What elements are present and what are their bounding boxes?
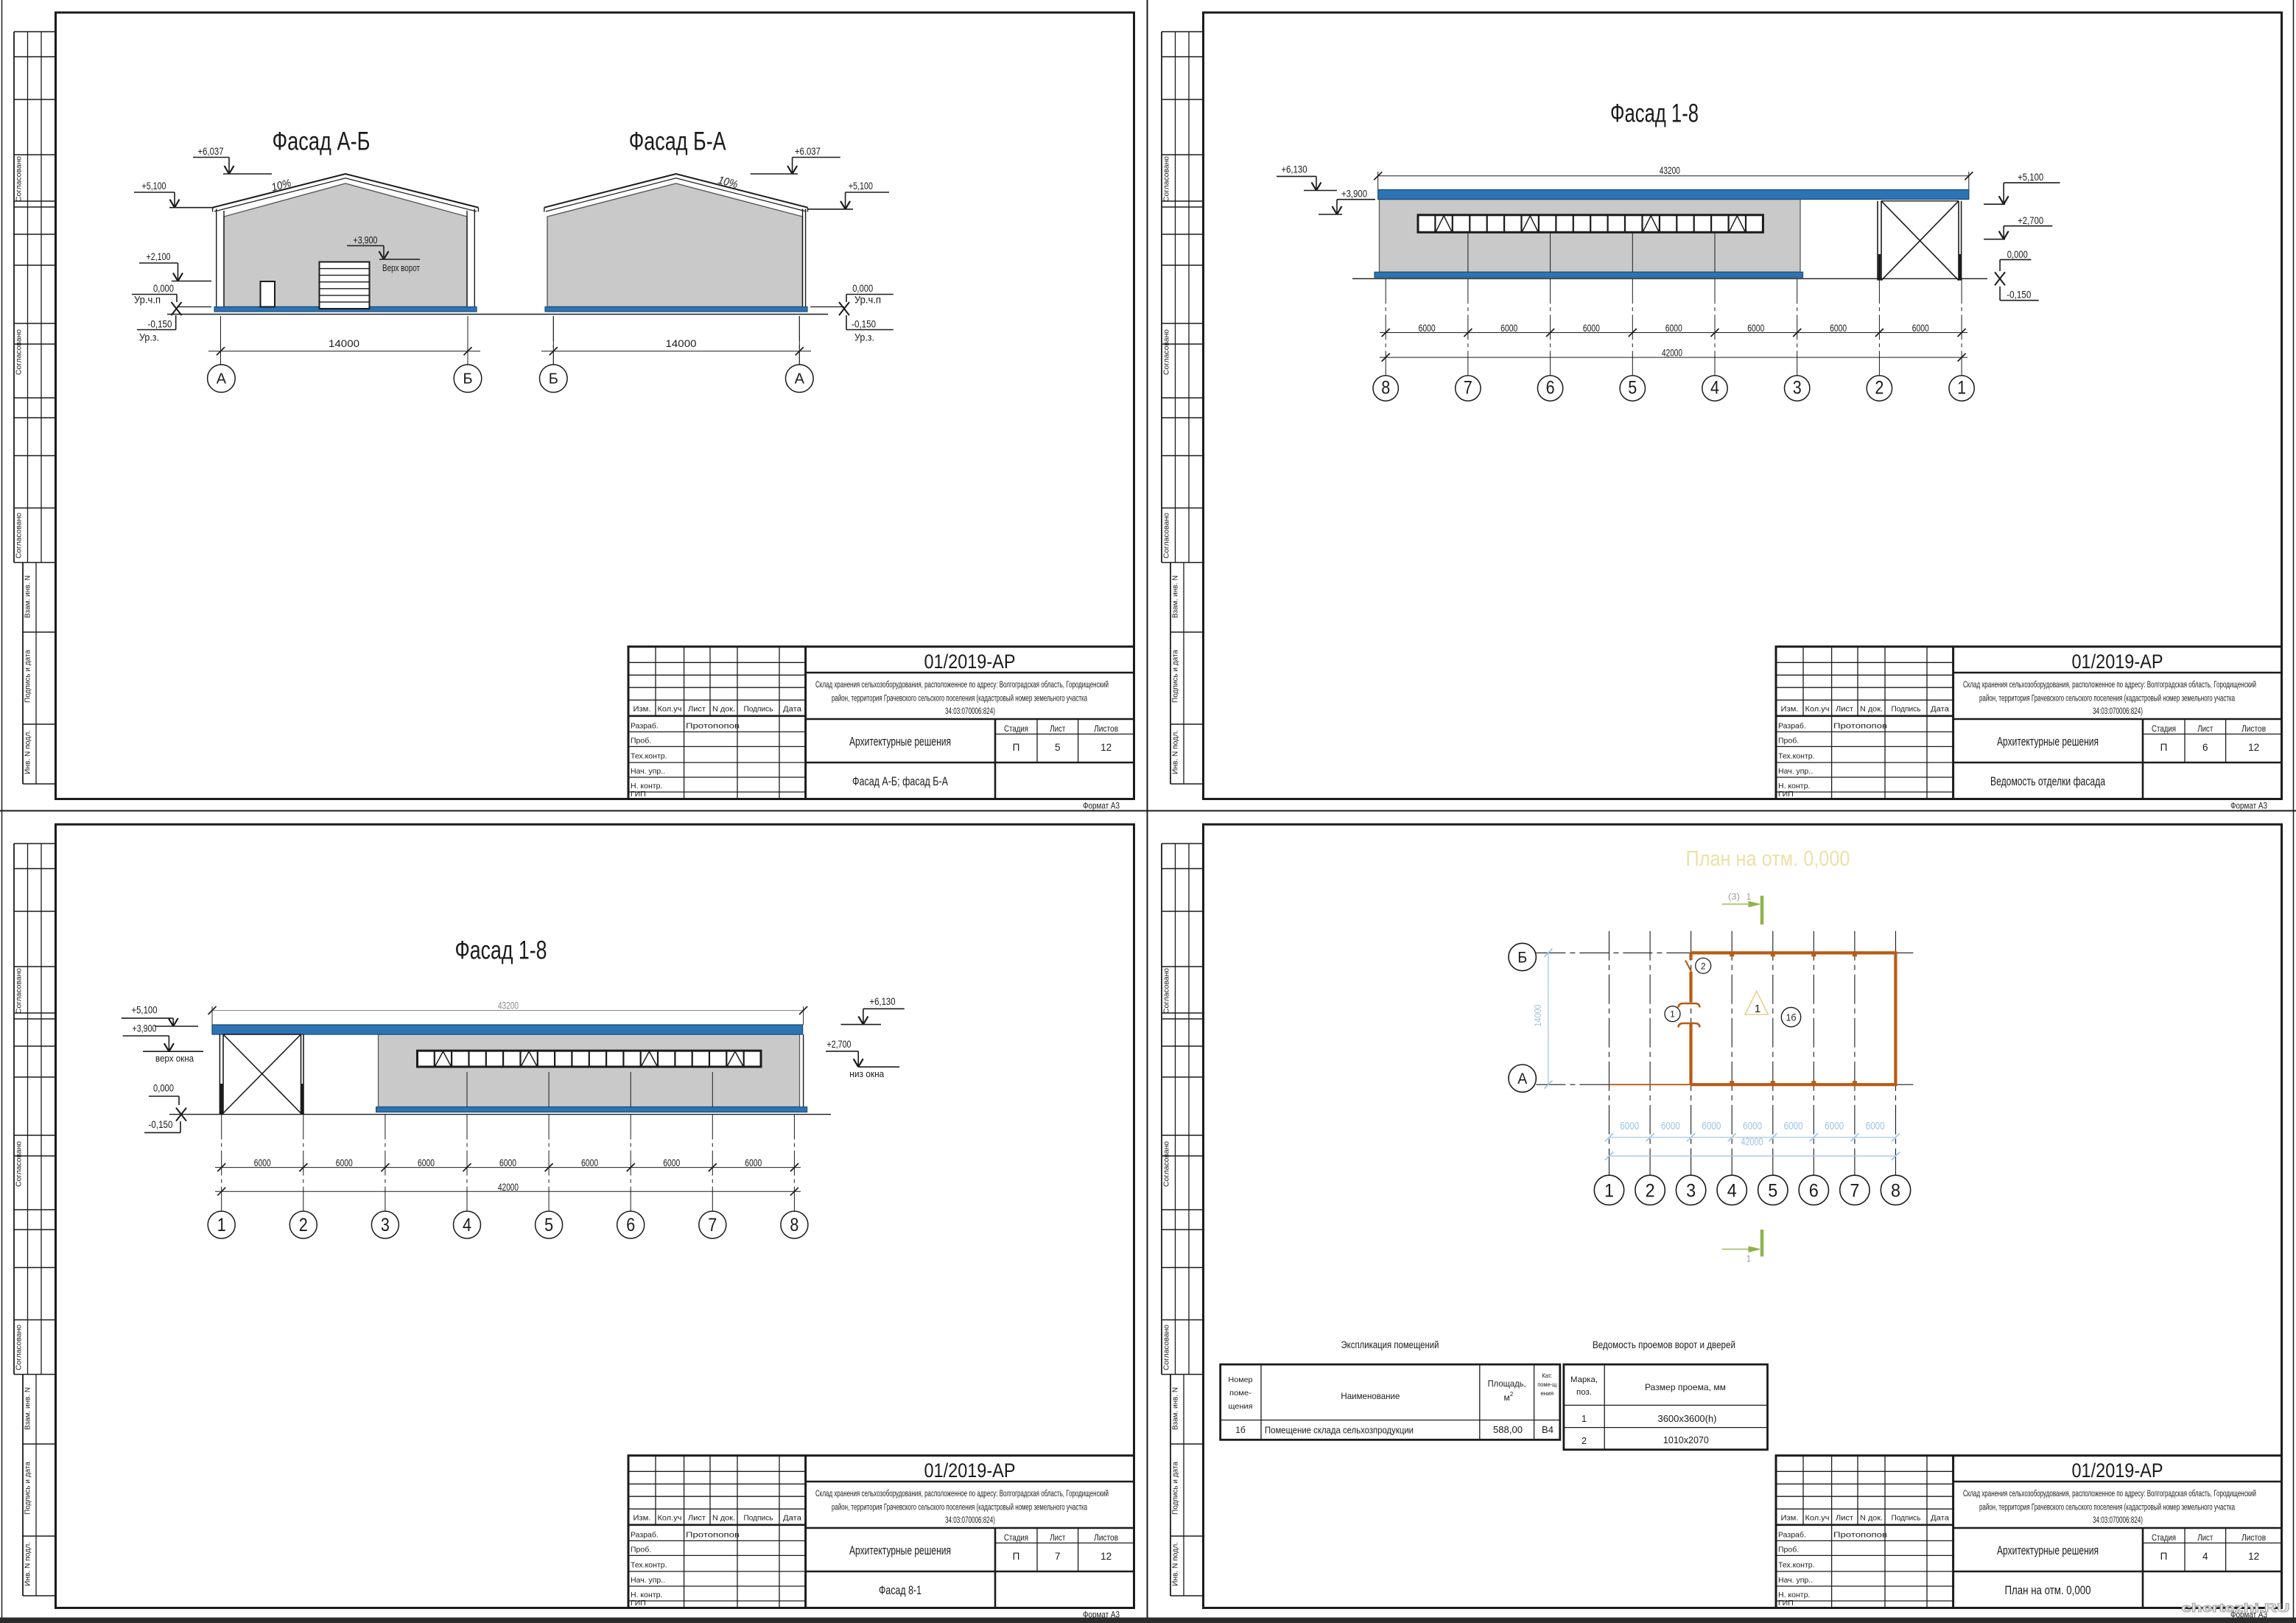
svg-text:Согласовано: Согласовано (1162, 513, 1171, 558)
svg-text:Подпись и дата: Подпись и дата (24, 650, 32, 703)
svg-text:2: 2 (1875, 378, 1884, 399)
svg-text:ГИП: ГИП (631, 790, 646, 799)
svg-text:Экспликация помещений: Экспликация помещений (1341, 1339, 1439, 1350)
svg-text:8: 8 (790, 1215, 798, 1235)
svg-text:Фасад Б-А: Фасад Б-А (629, 127, 727, 156)
svg-text:Тех.контр.: Тех.контр. (1778, 752, 1815, 761)
svg-text:6000: 6000 (1784, 1121, 1803, 1132)
svg-text:Б: Б (1517, 950, 1527, 967)
svg-text:Дата: Дата (783, 706, 801, 714)
svg-text:01/2019-АР: 01/2019-АР (924, 651, 1016, 673)
svg-text:-0,150: -0,150 (148, 319, 172, 331)
svg-text:Ур.ч.п: Ур.ч.п (854, 295, 881, 306)
svg-text:Нач. упр..: Нач. упр.. (631, 1576, 665, 1585)
svg-text:Проб.: Проб. (631, 737, 651, 746)
svg-text:3: 3 (1793, 378, 1802, 399)
svg-text:6000: 6000 (663, 1157, 680, 1169)
svg-text:План на отм. 0,000: План на отм. 0,000 (1686, 847, 1850, 871)
svg-text:Проб.: Проб. (1778, 1546, 1799, 1554)
svg-text:Лист: Лист (1050, 1534, 1066, 1543)
svg-text:Согласовано: Согласовано (1162, 968, 1171, 1014)
svg-text:4: 4 (463, 1215, 471, 1235)
svg-text:Нач. упр..: Нач. упр.. (631, 767, 665, 776)
svg-text:1010х2070: 1010х2070 (1663, 1435, 1709, 1445)
svg-text:Б: Б (463, 371, 472, 388)
svg-text:А: А (1517, 1070, 1527, 1087)
svg-text:42000: 42000 (1741, 1136, 1763, 1148)
svg-text:3600х3600(h): 3600х3600(h) (1658, 1414, 1717, 1424)
svg-text:Фасад 1-8: Фасад 1-8 (455, 936, 547, 965)
svg-text:N док.: N док. (1860, 706, 1883, 714)
svg-text:район, территория Грачевского: район, территория Грачевского сельского … (1979, 693, 2235, 704)
svg-text:4: 4 (1727, 1180, 1737, 1201)
svg-text:5: 5 (1768, 1180, 1777, 1201)
svg-text:Подпись: Подпись (1892, 706, 1921, 714)
svg-text:chertezhi.RU: chertezhi.RU (2182, 1601, 2290, 1615)
svg-text:Формат А3: Формат А3 (2230, 801, 2267, 811)
svg-text:Листов: Листов (2241, 725, 2266, 734)
svg-text:Наименование: Наименование (1341, 1391, 1400, 1401)
svg-text:4: 4 (1710, 378, 1719, 399)
svg-text:6000: 6000 (1620, 1121, 1639, 1132)
svg-text:1б: 1б (1235, 1425, 1246, 1435)
svg-text:Лист: Лист (2197, 725, 2214, 734)
svg-text:Склад хранения сельхозоборудов: Склад хранения сельхозоборудования, расп… (1963, 1488, 2256, 1498)
svg-text:Взам. инв. N: Взам. инв. N (24, 575, 32, 618)
svg-text:6000: 6000 (1825, 1121, 1844, 1132)
svg-text:14000: 14000 (666, 337, 697, 349)
svg-text:Протопопов: Протопопов (686, 1531, 740, 1540)
svg-text:7: 7 (1464, 378, 1472, 399)
svg-text:Ведомость проемов ворот и двер: Ведомость проемов ворот и дверей (1593, 1339, 1735, 1350)
svg-text:1: 1 (1670, 1009, 1675, 1020)
svg-text:П: П (1013, 1551, 1020, 1562)
svg-text:+6,037: +6,037 (198, 146, 224, 158)
svg-text:Подпись и дата: Подпись и дата (24, 1462, 32, 1515)
svg-text:6: 6 (626, 1215, 635, 1235)
svg-text:Согласовано: Согласовано (1162, 1141, 1171, 1187)
svg-text:Формат А3: Формат А3 (1083, 1610, 1120, 1620)
svg-text:Лист: Лист (1050, 725, 1066, 734)
svg-text:14000: 14000 (1532, 1005, 1543, 1027)
svg-text:6: 6 (2202, 742, 2208, 753)
svg-text:район, территория Грачевского: район, территория Грачевского сельского … (1979, 1502, 2235, 1512)
svg-text:6000: 6000 (1866, 1121, 1885, 1132)
svg-text:+6.037: +6.037 (795, 146, 821, 158)
svg-text:ения: ения (1540, 1390, 1554, 1397)
svg-text:Лист: Лист (688, 706, 706, 714)
svg-text:Стадия: Стадия (2152, 725, 2176, 734)
svg-text:Подпись и дата: Подпись и дата (1172, 1462, 1180, 1515)
svg-text:588,00: 588,00 (1493, 1425, 1523, 1435)
svg-text:34:03:070006:824): 34:03:070006:824) (2093, 706, 2143, 716)
svg-text:12: 12 (2248, 742, 2259, 753)
svg-text:Формат А3: Формат А3 (1083, 801, 1120, 811)
svg-text:5: 5 (1628, 378, 1637, 399)
svg-text:Номер: Номер (1229, 1375, 1253, 1384)
svg-text:низ окна: низ окна (849, 1068, 885, 1079)
svg-text:Стадия: Стадия (2152, 1534, 2176, 1543)
svg-text:Инв. N подл.: Инв. N подл. (24, 1542, 32, 1586)
svg-text:12: 12 (1100, 1551, 1112, 1562)
svg-text:8: 8 (1381, 378, 1390, 399)
svg-text:0,000: 0,000 (852, 283, 873, 295)
svg-text:6000: 6000 (581, 1157, 598, 1169)
svg-text:Подпись: Подпись (1892, 1515, 1921, 1523)
svg-text:12: 12 (1100, 742, 1112, 753)
svg-text:6000: 6000 (1583, 323, 1600, 334)
svg-text:Кат.: Кат. (1542, 1373, 1552, 1379)
svg-text:Листов: Листов (2241, 1534, 2266, 1543)
svg-text:Подпись: Подпись (744, 706, 773, 714)
svg-text:42000: 42000 (498, 1182, 519, 1193)
svg-text:6000: 6000 (1661, 1121, 1680, 1132)
svg-text:6000: 6000 (1702, 1121, 1721, 1132)
svg-text:6: 6 (1809, 1180, 1819, 1201)
svg-text:Кол.уч: Кол.уч (1805, 1515, 1830, 1523)
svg-text:1: 1 (1746, 1255, 1751, 1264)
svg-text:Взам. инв. N: Взам. инв. N (24, 1387, 32, 1430)
svg-text:Тех.контр.: Тех.контр. (1778, 1561, 1815, 1570)
svg-text:-0,150: -0,150 (2007, 290, 2031, 301)
svg-text:6000: 6000 (1419, 323, 1436, 334)
svg-text:Площадь,: Площадь, (1488, 1378, 1526, 1389)
svg-text:Фасад А-Б; фасад Б-А: Фасад А-Б; фасад Б-А (852, 775, 948, 788)
svg-text:Б: Б (549, 371, 558, 388)
svg-text:1: 1 (1604, 1180, 1614, 1201)
svg-text:Помещение склада сельхозпродук: Помещение склада сельхозпродукции (1265, 1426, 1414, 1436)
svg-text:Дата: Дата (1931, 706, 1949, 714)
svg-text:Фасад 1-8: Фасад 1-8 (1610, 99, 1699, 128)
svg-text:Согласовано: Согласовано (1162, 1325, 1171, 1370)
svg-text:Согласовано: Согласовано (1162, 329, 1171, 375)
svg-text:В4: В4 (1542, 1425, 1554, 1435)
svg-text:+2,700: +2,700 (827, 1039, 852, 1051)
svg-text:Лист: Лист (2197, 1534, 2214, 1543)
svg-text:Архитектурные решения: Архитектурные решения (1997, 735, 2099, 749)
svg-text:ГИП: ГИП (1778, 790, 1794, 799)
svg-text:Инв. N подл.: Инв. N подл. (24, 730, 32, 774)
svg-text:Верх ворот: Верх ворот (382, 262, 420, 273)
svg-text:поме-щ: поме-щ (1537, 1381, 1556, 1388)
svg-text:0,000: 0,000 (153, 1083, 174, 1095)
svg-text:+3,900: +3,900 (354, 235, 378, 247)
svg-text:Проб.: Проб. (631, 1546, 651, 1554)
svg-text:34:03:070006:824): 34:03:070006:824) (2093, 1515, 2143, 1525)
svg-text:N док.: N док. (712, 706, 735, 714)
svg-text:Разраб.: Разраб. (631, 1531, 659, 1540)
svg-text:01/2019-АР: 01/2019-АР (2072, 1459, 2163, 1482)
svg-text:Протопопов: Протопопов (1833, 1531, 1888, 1540)
svg-text:Лист: Лист (688, 1515, 706, 1523)
svg-text:Тех.контр.: Тех.контр. (631, 1561, 667, 1570)
svg-text:Ур.з.: Ур.з. (139, 332, 159, 343)
svg-text:Фасад 8-1: Фасад 8-1 (879, 1584, 921, 1597)
svg-text:34:03:070006:824): 34:03:070006:824) (945, 1515, 995, 1525)
svg-text:Кол.уч: Кол.уч (658, 1515, 682, 1523)
svg-text:2: 2 (299, 1215, 308, 1235)
svg-text:01/2019-АР: 01/2019-АР (924, 1459, 1016, 1482)
svg-text:2: 2 (1581, 1436, 1587, 1446)
svg-text:6: 6 (1546, 378, 1555, 399)
svg-text:0,000: 0,000 (153, 283, 174, 295)
svg-text:N док.: N док. (712, 1515, 735, 1523)
svg-text:3: 3 (1686, 1180, 1696, 1201)
svg-text:П: П (1013, 742, 1020, 753)
svg-text:Подпись: Подпись (744, 1515, 773, 1523)
svg-text:+6,130: +6,130 (1282, 164, 1307, 176)
svg-text:6000: 6000 (1747, 323, 1764, 334)
svg-text:6000: 6000 (1500, 323, 1517, 334)
svg-text:6000: 6000 (418, 1157, 435, 1169)
svg-text:Лист: Лист (1836, 1515, 1853, 1523)
svg-text:+3,900: +3,900 (133, 1023, 157, 1035)
svg-text:Тех.контр.: Тех.контр. (631, 752, 667, 761)
svg-text:ГИП: ГИП (631, 1599, 646, 1608)
svg-text:1: 1 (1581, 1414, 1587, 1424)
svg-text:43200: 43200 (1660, 165, 1680, 177)
svg-text:Изм.: Изм. (1781, 1515, 1799, 1523)
svg-text:6000: 6000 (336, 1157, 353, 1169)
svg-text:Архитектурные решения: Архитектурные решения (849, 735, 951, 749)
svg-text:Стадия: Стадия (1004, 725, 1028, 734)
svg-text:8: 8 (1891, 1180, 1900, 1201)
svg-text:6000: 6000 (1830, 323, 1847, 334)
svg-text:Согласовано: Согласовано (15, 156, 24, 202)
svg-text:Разраб.: Разраб. (1778, 1531, 1806, 1540)
svg-text:План на отм. 0,000: План на отм. 0,000 (2005, 1584, 2091, 1597)
svg-text:+3,900: +3,900 (1341, 189, 1367, 200)
svg-text:Разраб.: Разраб. (1778, 722, 1806, 731)
svg-text:Подпись и дата: Подпись и дата (1172, 650, 1180, 703)
svg-text:Стадия: Стадия (1004, 1534, 1028, 1543)
svg-text:+5,100: +5,100 (142, 180, 166, 192)
svg-text:5: 5 (544, 1215, 553, 1235)
svg-text:3: 3 (381, 1215, 390, 1235)
svg-text:Марка,: Марка, (1570, 1375, 1598, 1384)
svg-text:Согласовано: Согласовано (15, 1141, 24, 1187)
svg-text:ГИП: ГИП (1778, 1599, 1794, 1608)
svg-text:Архитектурные решения: Архитектурные решения (1997, 1544, 2099, 1557)
svg-text:Склад хранения сельхозоборудов: Склад хранения сельхозоборудования, расп… (1963, 679, 2256, 690)
svg-text:Дата: Дата (783, 1515, 801, 1523)
svg-text:1: 1 (1755, 1003, 1760, 1015)
svg-text:П: П (2160, 742, 2168, 753)
svg-text:+5,100: +5,100 (2018, 172, 2043, 183)
svg-text:Взам. инв. N: Взам. инв. N (1172, 1387, 1180, 1430)
svg-text:6000: 6000 (745, 1157, 762, 1169)
svg-text:Кол.уч: Кол.уч (658, 706, 682, 714)
svg-text:2: 2 (1510, 1391, 1514, 1398)
svg-text:43200: 43200 (498, 1000, 519, 1012)
svg-text:Проб.: Проб. (1778, 737, 1799, 746)
svg-text:Изм.: Изм. (633, 706, 651, 714)
svg-text:Согласовано: Согласовано (15, 329, 24, 375)
svg-text:район, территория Грачевского: район, территория Грачевского сельского … (832, 1502, 1087, 1512)
svg-text:5: 5 (1055, 742, 1061, 753)
svg-text:7: 7 (708, 1215, 717, 1235)
svg-text:Склад хранения сельхозоборудов: Склад хранения сельхозоборудования, расп… (815, 1488, 1109, 1498)
svg-text:2: 2 (1701, 961, 1706, 971)
svg-text:Согласовано: Согласовано (15, 1325, 24, 1370)
svg-text:П: П (2160, 1551, 2168, 1562)
svg-text:Ведомость отделки фасада: Ведомость отделки фасада (1990, 775, 2106, 788)
svg-text:+2,100: +2,100 (147, 251, 171, 263)
svg-text:1б: 1б (1786, 1013, 1796, 1023)
svg-text:-0,150: -0,150 (852, 319, 876, 331)
svg-text:1: 1 (217, 1215, 226, 1235)
svg-text:+5,100: +5,100 (132, 1005, 158, 1017)
svg-text:Взам. инв. N: Взам. инв. N (1172, 575, 1180, 618)
svg-text:Склад хранения сельхозоборудов: Склад хранения сельхозоборудования, расп… (815, 679, 1109, 690)
svg-text:1: 1 (1746, 893, 1751, 902)
svg-text:Лист: Лист (1836, 706, 1853, 714)
svg-text:А: А (217, 371, 227, 388)
svg-text:42000: 42000 (1662, 348, 1682, 360)
svg-text:-0,150: -0,150 (149, 1119, 173, 1131)
svg-text:Фасад А-Б: Фасад А-Б (273, 127, 371, 156)
svg-text:N док.: N док. (1860, 1515, 1883, 1523)
svg-text:поме-: поме- (1229, 1389, 1252, 1398)
svg-text:6000: 6000 (499, 1157, 516, 1169)
svg-text:Дата: Дата (1931, 1515, 1949, 1523)
svg-text:Инв. N подл.: Инв. N подл. (1172, 1542, 1180, 1586)
svg-text:Разраб.: Разраб. (631, 722, 659, 731)
svg-text:1: 1 (1957, 378, 1966, 399)
svg-text:Архитектурные решения: Архитектурные решения (849, 1544, 951, 1557)
svg-text:+6,130: +6,130 (870, 996, 896, 1008)
svg-text:Ур.ч.п: Ур.ч.п (134, 295, 161, 306)
svg-text:7: 7 (1055, 1551, 1061, 1562)
svg-text:6000: 6000 (254, 1157, 271, 1169)
svg-text:м: м (1503, 1392, 1509, 1403)
svg-text:Листов: Листов (1094, 1534, 1118, 1543)
svg-text:(3): (3) (1728, 893, 1740, 902)
svg-text:Ур.з.: Ур.з. (854, 332, 874, 343)
svg-text:Протопопов: Протопопов (1833, 722, 1888, 731)
svg-text:+2,700: +2,700 (2018, 215, 2043, 227)
svg-text:Размер проема, мм: Размер проема, мм (1645, 1382, 1726, 1392)
svg-text:поз.: поз. (1576, 1388, 1592, 1397)
svg-text:14000: 14000 (329, 337, 359, 349)
svg-text:7: 7 (1850, 1180, 1859, 1201)
svg-text:6000: 6000 (1912, 323, 1929, 334)
svg-text:район, территория Грачевского: район, территория Грачевского сельского … (832, 693, 1087, 704)
svg-text:верх окна: верх окна (155, 1053, 194, 1064)
svg-text:Согласовано: Согласовано (1162, 156, 1171, 202)
svg-text:6000: 6000 (1665, 323, 1682, 334)
svg-text:Листов: Листов (1094, 725, 1118, 734)
svg-text:34:03:070006:824): 34:03:070006:824) (945, 706, 995, 716)
svg-text:+5,100: +5,100 (849, 180, 873, 192)
svg-text:Нач. упр..: Нач. упр.. (1778, 767, 1813, 776)
svg-text:2: 2 (1646, 1180, 1655, 1201)
svg-text:Согласовано: Согласовано (15, 513, 24, 558)
svg-text:Протопопов: Протопопов (686, 722, 740, 731)
svg-text:щения: щения (1229, 1402, 1253, 1411)
svg-text:А: А (795, 371, 805, 388)
svg-text:4: 4 (2202, 1551, 2208, 1562)
svg-text:Изм.: Изм. (633, 1515, 651, 1523)
svg-text:6000: 6000 (1743, 1121, 1762, 1132)
svg-text:Согласовано: Согласовано (15, 968, 24, 1014)
svg-text:Инв. N подл.: Инв. N подл. (1172, 730, 1180, 774)
svg-text:Кол.уч: Кол.уч (1805, 706, 1830, 714)
svg-text:Изм.: Изм. (1781, 706, 1799, 714)
svg-text:01/2019-АР: 01/2019-АР (2072, 651, 2163, 673)
svg-text:12: 12 (2248, 1551, 2259, 1562)
svg-text:Нач. упр..: Нач. упр.. (1778, 1576, 1813, 1585)
